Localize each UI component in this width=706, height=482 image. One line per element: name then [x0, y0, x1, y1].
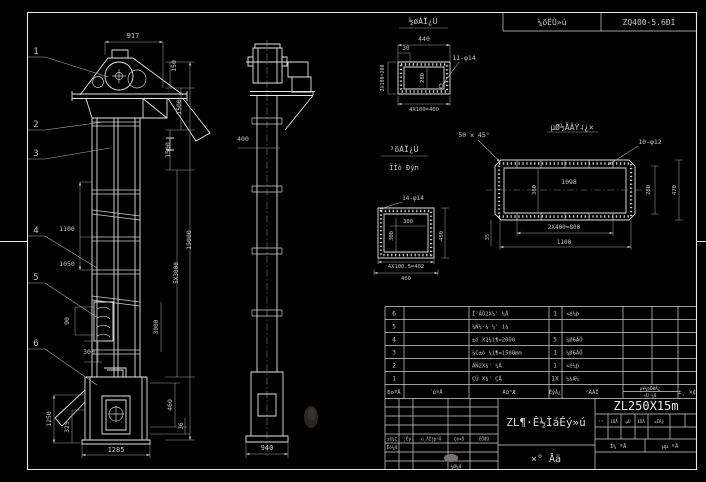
balloon-number: 4	[33, 226, 38, 236]
bom-header-no: ÐòºÅ	[387, 389, 401, 396]
bom-header-qty: ÊýÁ¿	[549, 388, 561, 396]
front-head-outline	[72, 50, 210, 150]
bom-header-material: ²ÄÁÏ	[585, 389, 598, 396]
bom-header-row: ÐòºÅ ´úºÅ Ãû³Æ ÊýÁ¿ ²ÄÁÏ µ¥¼þÖØÁ¿ ×Ü ¼Æ …	[387, 385, 696, 399]
drawing-svg: ¼õËÙ»ú ZQ400-5.6ÐÍ	[0, 0, 706, 482]
bom-cell-material: ¼Ø6ÂÖ	[566, 337, 583, 344]
dim-text: 280	[646, 185, 652, 195]
base-plate-dim-lines	[491, 132, 683, 250]
bom-cell-material: ¼¼Æ¼	[566, 377, 579, 383]
dim-text: 150	[170, 60, 178, 72]
bom-cell-name: ±ó X2¼ì¶=2000	[472, 337, 515, 344]
balloon-number: 1	[33, 47, 38, 57]
dim-text: ³öÁÏ¿Ú	[390, 143, 419, 154]
info-cell: µÚ	[625, 419, 631, 424]
dim-text: 1050	[59, 260, 75, 268]
dim-text: 280	[420, 73, 426, 83]
dim-text: 940	[261, 444, 274, 452]
dim-text: 470	[672, 185, 678, 195]
balloon-number: 6	[33, 339, 38, 349]
dim-text: 2X400=800	[548, 224, 581, 231]
doc-number-label: Í¼ ºÅ	[610, 442, 627, 450]
dim-text: 325	[63, 421, 71, 433]
smudge-mark-core	[308, 408, 316, 420]
header-strip-right-label: ZQ400-5.6ÐÍ	[623, 16, 676, 27]
base-plate-detail	[478, 132, 683, 250]
dim-text: 1500	[175, 99, 183, 115]
bom-header-name: Ãû³Æ	[502, 389, 516, 396]
bom-cell-no: 2	[392, 363, 396, 370]
bom-cell-no: 4	[392, 337, 396, 344]
rev-header-cell: ÈÕÆÚ	[479, 437, 490, 442]
dim-text: 1250	[45, 411, 53, 427]
bucket-profiles	[97, 307, 110, 337]
info-cell: ±ÈÀý	[654, 419, 665, 424]
bom-header-code: ´úºÅ	[429, 389, 443, 396]
dim-text: 1100	[59, 225, 75, 233]
bom-cell-material: ¼Ø6ÂÖ	[566, 350, 583, 357]
bom-cell-name: ¼Ñ¼·¼ ¼' 1¼	[472, 324, 508, 331]
pulley-centermark	[112, 69, 126, 83]
outlet-flange-detail	[374, 156, 449, 275]
info-cell: 1ÕÅ	[637, 419, 645, 424]
dim-text: 460	[401, 276, 411, 282]
dim-text: 5X3000	[173, 262, 180, 284]
header-strip-left-label: ¼õËÙ»ú	[538, 16, 567, 27]
bom-cell-qty: 1	[553, 350, 557, 357]
bom-cell-name: ÇŨ X¼' ÇÅ	[472, 376, 502, 383]
dim-text: 35	[485, 234, 491, 241]
bom-cell-name: ÁÑ2X¼' ¼Å	[472, 363, 502, 370]
header-strip: ¼õËÙ»ú ZQ400-5.6ÐÍ	[503, 13, 697, 32]
dim-text: 300	[389, 231, 395, 241]
side-outline	[246, 44, 315, 442]
dim-text: 30	[402, 45, 410, 52]
dim-text: 1500	[164, 142, 172, 158]
rev-header-cell: ¸ü¸ÄÎļþºÅ	[419, 437, 442, 442]
bom-cell-material: ×é¼þ	[566, 311, 579, 318]
cad-drawing-canvas: ¼õËÙ»ú ZQ400-5.6ÐÍ	[0, 0, 706, 482]
dim-text: 2X100=200	[380, 64, 386, 91]
chamfer-note-leader	[478, 140, 500, 162]
dim-text: 300	[403, 219, 413, 225]
dim-text: 1100	[557, 239, 572, 246]
dim-text: 300	[83, 348, 95, 356]
dim-text: 4X100=400	[409, 107, 439, 113]
dim-text: 10-φ12	[638, 138, 662, 146]
dim-text: 1098	[561, 178, 577, 186]
sig-design-label: Éè¼Æ	[387, 443, 398, 451]
dim-text: 917	[127, 32, 140, 40]
bom-header-remark: ±¸ ×¢	[678, 389, 696, 396]
model-number: ZL250X15m	[613, 399, 678, 413]
info-cell: 1ÕÅ	[610, 419, 618, 424]
casing-joint-bands	[92, 122, 140, 354]
base-hole-leader	[608, 146, 638, 165]
rev-header-row: ±ê¼Ç´¦Êý¸ü¸ÄÎļþºÅÇ©×ÖÈÕÆÚ	[387, 437, 490, 443]
side-elevation-view	[238, 40, 318, 458]
title-block: ZL¶·Ê½ÌáÉý»ú ×° Åä ZL250X15m ±ê¼Ç´¦Êý¸ü¸…	[385, 399, 697, 471]
rev-header-cell: Ç©×Ö	[454, 437, 465, 442]
info-cells-row: ¹²1ÕÅµÚ1ÕÅ±ÈÀý	[598, 419, 664, 424]
archive-number-label: µµ ºÅ	[662, 443, 679, 450]
dim-text: 460	[166, 399, 174, 411]
bom-cell-qty: 1	[553, 363, 557, 370]
info-cell: ¹²	[598, 419, 603, 424]
sub-title: ×° Åä	[531, 452, 561, 465]
boot-pulley-centermark	[108, 406, 124, 422]
side-dim-lines	[238, 148, 288, 458]
rev-header-cell: ´¦Êý	[401, 437, 412, 442]
head-drive-circle	[93, 77, 104, 88]
hole-callout-leader	[443, 62, 459, 84]
front-casing-outline	[92, 118, 140, 377]
outlet-flange-dim-lines	[374, 156, 449, 275]
dim-text: 400	[237, 135, 249, 143]
bom-cell-name: Î²ÂÖ2X¼' ¼Å	[472, 311, 509, 318]
outlet-flange-outline	[378, 208, 434, 258]
bom-cell-qty: 5	[553, 337, 557, 344]
balloon-number: 3	[33, 149, 38, 159]
balloon-number: 2	[33, 120, 38, 130]
dim-text: 15000	[185, 230, 193, 250]
bom-cell-no: 5	[392, 324, 396, 331]
dim-text: µØ½ÅÂÝ˨¿×	[550, 121, 594, 132]
dim-text: 36	[178, 422, 185, 430]
signature-smudge	[444, 454, 458, 462]
sig-check-label: ¼Ø¼Æ	[451, 463, 462, 470]
dim-text: 440	[418, 35, 430, 43]
bom-cell-no: 3	[392, 350, 396, 357]
bom-cell-name: ¼C±ó ¼ì¶=1500mm	[472, 350, 522, 357]
bom-cell-no: 1	[392, 376, 396, 383]
bom-cell-no: 6	[392, 311, 396, 318]
dim-text: 50 x 45°	[458, 131, 489, 139]
bom-cell-qty: 1	[553, 311, 557, 318]
head-sprocket-circle	[128, 70, 146, 88]
dim-text: 450	[439, 231, 445, 241]
dim-text: 3000	[153, 319, 160, 334]
balloon-numbers: 123456	[33, 47, 38, 349]
rev-header-cell: ±ê¼Ç	[387, 437, 398, 443]
dim-text: 11-φ14	[452, 54, 476, 62]
bom-header-total: ×Ü ¼Æ	[644, 392, 657, 399]
dim-text: 1285	[108, 446, 125, 454]
main-title: ZL¶·Ê½ÌáÉý»ú	[506, 416, 585, 429]
dim-text: 360	[532, 185, 538, 195]
bom-cell-qty: 1X	[551, 376, 559, 383]
dim-text: 14-φ14	[402, 195, 424, 202]
bom-cell-material: ×é¼þ	[566, 363, 579, 370]
dim-text: 4X100.5=402	[388, 264, 424, 270]
dim-text: ½øÁÏ¿Ú	[409, 15, 438, 26]
dim-text: 90	[63, 317, 71, 325]
balloon-number: 5	[33, 273, 38, 283]
dim-text: ÏÌò Ðýת	[389, 163, 419, 172]
bom-header-unit-weight: µ¥¼þÖØÁ¿	[640, 385, 661, 392]
inlet-flange-hole	[439, 84, 443, 88]
